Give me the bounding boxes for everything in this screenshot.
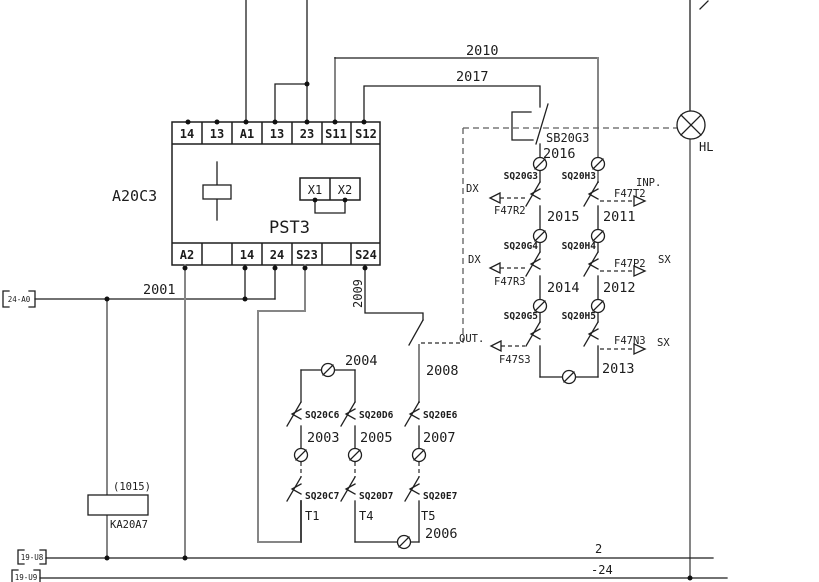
limit-switch-sq20c7: SQ20C7 — [287, 477, 339, 502]
direction-label-sx2: SX — [657, 337, 670, 349]
schematic-page: 2010 2017 14 13 A1 13 23 S11 S12 A2 14 2… — [0, 0, 819, 582]
signal-ref-f47r2: F47R2 — [494, 205, 526, 217]
terminal-x1: X1 — [308, 183, 322, 197]
terminal-x2: X2 — [338, 183, 352, 197]
switch-label-sq20h4: SQ20H4 — [562, 241, 597, 252]
direction-label-sx1: SX — [658, 254, 671, 266]
wire-label-2011: 2011 — [603, 209, 636, 225]
terminal-top-s12: S12 — [355, 127, 377, 141]
lamp-label: HL — [699, 140, 713, 154]
switch-label-sq20g4: SQ20G4 — [504, 241, 539, 252]
limit-switch-sq20g4: SQ20G4 — [490, 241, 540, 276]
signal-ref-f47p2: F47P2 — [614, 258, 646, 270]
position-indicator-icon — [563, 371, 576, 384]
timer-label-t4: T4 — [359, 509, 373, 523]
position-indicator-icon — [592, 300, 605, 313]
wire-label-2017: 2017 — [456, 69, 489, 85]
position-indicator-icon — [534, 300, 547, 313]
hl-lamp-icon: HL — [677, 0, 713, 578]
wire-label-2003: 2003 — [307, 430, 340, 446]
coil-icon — [203, 162, 231, 220]
switch-label-sq20h3: SQ20H3 — [562, 171, 597, 182]
terminal-top-13a: 13 — [210, 127, 224, 141]
terminal-bot-24: 24 — [270, 248, 284, 262]
wire-label-2008: 2008 — [426, 363, 459, 379]
cross-ref-flag-left: 24-A0 — [3, 291, 35, 307]
terminal-top-23: 23 — [300, 127, 314, 141]
cross-ref-flag-bus1: 19-U8 — [18, 550, 46, 564]
page-edge-tick — [700, 1, 708, 9]
top-feed-wires: 2010 2017 — [246, 0, 708, 157]
position-indicator-icon — [534, 158, 547, 171]
switch-label-sq20d7: SQ20D7 — [359, 491, 393, 502]
terminal-top-s11: S11 — [325, 127, 347, 141]
terminal-top-14: 14 — [180, 127, 194, 141]
cross-ref-label: 24-A0 — [8, 295, 31, 304]
terminal-bot-s24: S24 — [355, 248, 377, 262]
wire-label-2010: 2010 — [466, 43, 499, 59]
terminal-bot-14: 14 — [240, 248, 254, 262]
wire-label-2014: 2014 — [547, 280, 580, 296]
timer-label-t5: T5 — [421, 509, 435, 523]
cross-ref-flag-bus2: 19-U9 — [12, 570, 40, 582]
position-indicator-icon — [398, 536, 411, 549]
switch-label-sq20c7: SQ20C7 — [305, 491, 339, 502]
wire-label-2013: 2013 — [602, 361, 635, 377]
wire-label-2007: 2007 — [423, 430, 456, 446]
switch-label-sb20g3: SB20G3 — [546, 131, 589, 145]
limit-switch-sq20d6: SQ20D6 — [341, 402, 394, 426]
aux-terminal-block: X1 X2 — [300, 178, 360, 213]
position-indicator-icon — [295, 449, 308, 462]
switch-label-sq20g3: SQ20G3 — [504, 171, 539, 182]
sb20g3-switch: SB20G3 — [512, 104, 589, 145]
schematic-canvas: 2010 2017 14 13 A1 13 23 S11 S12 A2 14 2… — [0, 0, 819, 582]
wire-label-2006: 2006 — [425, 526, 458, 542]
direction-label-dx1: DX — [466, 183, 479, 195]
bottom-buses: 2 -24 — [40, 542, 727, 578]
wire-label-2005: 2005 — [360, 430, 393, 446]
limit-switch-sq20g3: SQ20G3 — [490, 171, 540, 206]
wire-label-2009: 2009 — [351, 279, 365, 308]
limit-switch-sq20g5: SQ20G5 — [491, 311, 540, 351]
position-indicator-icon — [413, 449, 426, 462]
out-contact — [409, 320, 463, 345]
limit-switch-sq20d7: SQ20D7 — [341, 477, 393, 502]
timer-label-t1: T1 — [305, 509, 319, 523]
switch-label-sq20c6: SQ20C6 — [305, 410, 340, 421]
terminal-bot-s23: S23 — [296, 248, 318, 262]
direction-label-out: OUT. — [459, 333, 484, 345]
limit-switch-sq20e6: SQ20E6 — [405, 402, 458, 426]
limit-switch-sq20c6: SQ20C6 — [287, 402, 340, 426]
bus-label-2: 2 — [595, 542, 602, 556]
module-ref-label: A20C3 — [112, 187, 157, 205]
bus-label-minus24: -24 — [591, 563, 613, 577]
position-indicator-icon — [534, 230, 547, 243]
relay-label: KA20A7 — [110, 519, 148, 531]
position-indicator-icon — [592, 158, 605, 171]
position-indicator-icon — [349, 449, 362, 462]
position-indicator-icon — [592, 230, 605, 243]
wire-label-2004: 2004 — [345, 353, 378, 369]
wire-label-2012: 2012 — [603, 280, 636, 296]
ka20a7-relay-coil: (1015) KA20A7 — [88, 481, 151, 531]
module-model-label: PST3 — [269, 218, 310, 238]
signal-ref-f47t2: F47T2 — [614, 188, 646, 200]
limit-switch-sq20h5: SQ20H5 — [562, 311, 645, 354]
wire-label-2016: 2016 — [543, 146, 576, 162]
wire-label-2001: 2001 — [143, 282, 176, 298]
direction-label-dx2: DX — [468, 254, 481, 266]
limit-switch-sq20e7: SQ20E7 — [405, 477, 457, 502]
switch-label-sq20e7: SQ20E7 — [423, 491, 457, 502]
cross-ref-label: 19-U9 — [15, 573, 38, 582]
position-indicator-icon — [322, 364, 335, 377]
right-selector-section: SB20G3 2016 SQ20G3 SQ20G4 — [459, 0, 713, 578]
terminal-bot-a2: A2 — [180, 248, 194, 262]
switch-label-sq20e6: SQ20E6 — [423, 410, 458, 421]
switch-label-sq20d6: SQ20D6 — [359, 410, 394, 421]
bottom-switch-grid: 2009 2008 2004 SQ20C6 2003 SQ20C7 T1 — [258, 265, 463, 542]
left-wiring: 2001 (1015) KA20A7 — [35, 265, 275, 558]
terminal-top-13b: 13 — [270, 127, 284, 141]
relay-note-label: (1015) — [113, 481, 151, 493]
signal-ref-f47r3: F47R3 — [494, 276, 526, 288]
junction-dots — [105, 82, 693, 581]
signal-ref-f47n3: F47N3 — [614, 335, 646, 347]
terminal-top-a1: A1 — [240, 127, 254, 141]
switch-label-sq20g5: SQ20G5 — [504, 311, 539, 322]
switch-label-sq20h5: SQ20H5 — [562, 311, 597, 322]
wire-label-2015: 2015 — [547, 209, 580, 225]
cross-ref-label: 19-U8 — [21, 553, 44, 562]
signal-ref-f47s3: F47S3 — [499, 354, 531, 366]
pst3-module: 14 13 A1 13 23 S11 S12 A2 14 24 S23 S24 … — [112, 122, 380, 265]
